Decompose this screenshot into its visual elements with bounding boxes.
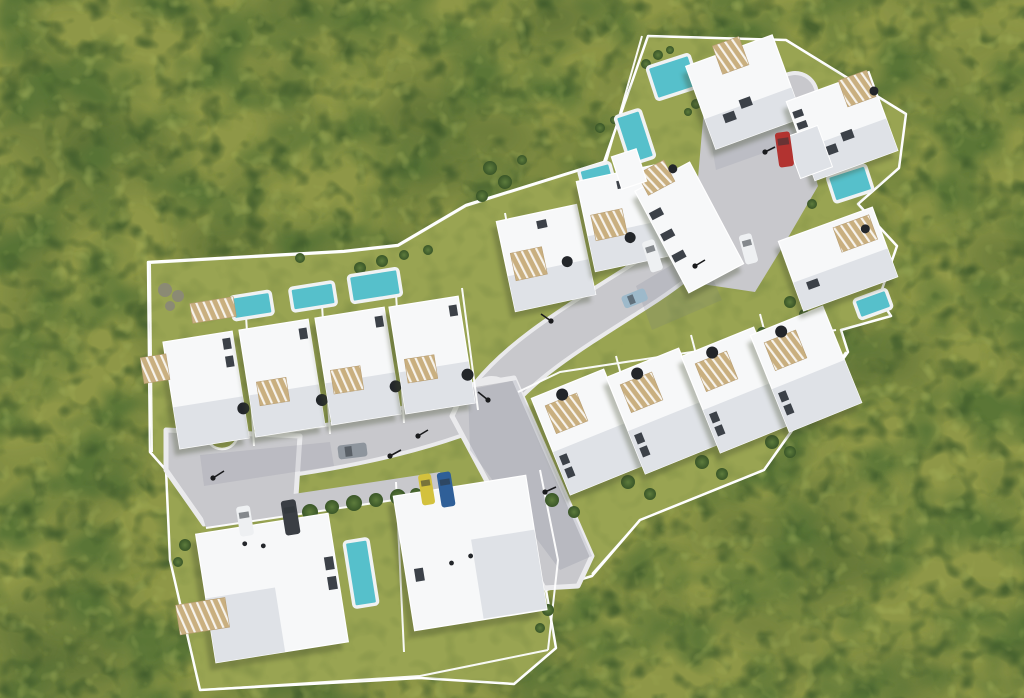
pergola (330, 366, 363, 394)
villa-south-2 (386, 475, 548, 638)
aerial-render-canvas (0, 0, 1024, 698)
swimming-pool (348, 268, 402, 302)
pergola (404, 355, 437, 383)
swimming-pool (230, 291, 273, 320)
site-plan-render (0, 0, 1024, 698)
swimming-pool (290, 282, 337, 312)
pergola (140, 354, 170, 384)
pergola (256, 377, 289, 405)
